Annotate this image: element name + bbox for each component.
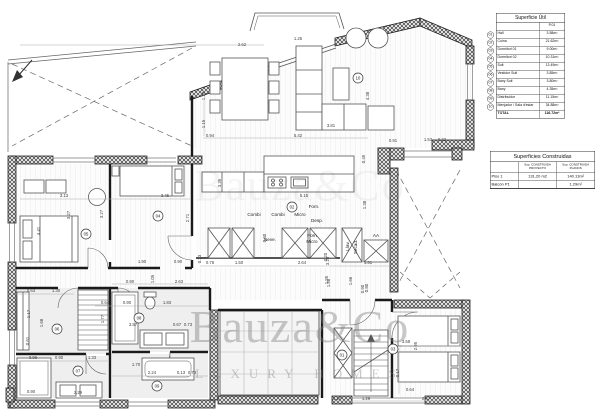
patio-floor	[220, 310, 320, 398]
dimension-text: 0.63	[27, 288, 36, 293]
dimension-text: 2.24	[148, 370, 157, 375]
armchair	[368, 106, 394, 130]
pillow	[451, 319, 458, 330]
room-label-cell: Bany	[497, 87, 540, 95]
room-label-cell: Dormitori 01	[497, 47, 540, 55]
fixture-label: Neve.	[264, 237, 276, 242]
dimension-text: 0.67	[173, 322, 182, 327]
dimension-text: 1.68	[39, 318, 44, 327]
wardrobe	[46, 180, 66, 193]
bath2-fixtures	[142, 358, 194, 380]
bathtub	[142, 358, 194, 380]
table-row: TOTAL116.72m²	[497, 111, 565, 119]
dimension-text: 1.90	[138, 259, 147, 264]
coffee-table	[333, 68, 349, 100]
dimension-text: 1.83	[163, 300, 172, 305]
sink	[144, 333, 162, 345]
fixture-label: Llav.	[345, 241, 350, 250]
room-label-cell: Distribuidor	[497, 95, 540, 103]
value-cell	[519, 181, 557, 189]
fixture-label: Combi	[247, 212, 260, 217]
balcony	[250, 13, 344, 31]
column	[368, 28, 388, 48]
dimension-text: 0.23	[197, 254, 202, 263]
fixture-label: Forn.	[309, 204, 320, 209]
dimension-text: 1.30	[52, 288, 61, 293]
room-label-cell	[497, 23, 540, 31]
room-number-badge: 09	[487, 96, 494, 103]
dimension-text: 1.05	[150, 274, 155, 283]
area-value-cell: 3.85m²	[540, 71, 565, 79]
dimension-text: 0.90	[123, 300, 132, 305]
dimension-text: 1.33	[88, 355, 97, 360]
dimension-text: 4.41	[36, 226, 41, 235]
fixture-label: Secad.	[353, 240, 358, 254]
room-number-badge: 10	[487, 104, 494, 111]
chair	[269, 81, 279, 94]
value-cell: 140.13m²	[557, 173, 595, 181]
dimension-text: 0.96	[29, 355, 38, 360]
dimension-text: 0.49	[361, 154, 366, 163]
room-number-text: 10	[356, 76, 361, 81]
dimension-text: 0.73	[188, 370, 197, 375]
value-cell: 1.29m²	[557, 181, 595, 189]
sink	[166, 333, 184, 345]
dimension-text: 1.29	[362, 396, 371, 401]
dimension-text: 0.94	[206, 133, 215, 138]
dimension-text: 1.53	[424, 137, 433, 142]
table-row: 01Hall3.58m²	[497, 31, 565, 39]
room-label-cell: Hall	[497, 31, 540, 39]
dimension-text: 0.90	[27, 389, 36, 394]
pillow	[175, 169, 182, 180]
dimension-text: 2.62	[238, 42, 247, 47]
area-value-cell: 3.58m²	[540, 31, 565, 39]
table-row: 06Vestidor Suit3.85m²	[497, 71, 565, 79]
dimension-text: 3.35	[217, 178, 222, 187]
column-header-cell: Sup. CONSTRUIDA PROYECTO	[519, 162, 557, 173]
room-label-cell: Bany Suit	[497, 79, 540, 87]
room-number-text: 09	[155, 384, 160, 389]
hob	[268, 177, 286, 188]
dimension-text: 0.64	[101, 300, 110, 305]
dimension-text: 0.76	[206, 260, 215, 265]
void-bottomright-x	[400, 272, 460, 298]
dimension-text: 3.27	[66, 210, 71, 219]
dimension-text: 5.15	[300, 193, 309, 198]
round-chair	[89, 189, 106, 206]
area-value-cell: 11.15m²	[540, 95, 565, 103]
table-row: 07Bany Suit3.80m²	[497, 79, 565, 87]
pillow	[23, 241, 32, 259]
dimension-text: 3.57	[129, 322, 138, 327]
dimension-text: 1.15	[201, 119, 206, 128]
table-row: 02Cuina21.62m²	[497, 39, 565, 47]
value-cell: Piso 1	[491, 173, 519, 181]
room-number-text: 02	[290, 205, 295, 210]
sink	[80, 385, 96, 396]
dimension-text: 5.42	[294, 133, 303, 138]
superficies-construidas-table: Superficies Construidas Sup. CONSTRUIDA …	[490, 151, 595, 189]
room-number-badge: 05	[487, 64, 494, 71]
toilet-tank	[144, 292, 156, 297]
dimension-text: 3.45	[161, 193, 170, 198]
bed	[120, 166, 184, 196]
dimension-text: 3.27	[99, 209, 104, 218]
dimension-text: 1.50	[235, 260, 244, 265]
dimension-text: 2.29	[74, 390, 83, 395]
dining-table-set	[210, 58, 279, 120]
dimension-text: 1.10	[333, 396, 342, 401]
room-number-text: 08	[137, 316, 142, 321]
dimension-text: 1.20	[201, 91, 206, 100]
room-number-badge: 02	[487, 40, 494, 47]
column-header-cell	[491, 162, 519, 173]
dimension-text: 0.61	[25, 336, 30, 345]
dimension-text: 0.90	[126, 279, 135, 284]
room-label-cell: Menjador / Sala d'estar	[497, 103, 540, 111]
table-row: P.01	[497, 23, 565, 31]
dimension-text: 1.25	[294, 36, 303, 41]
dimension-text: 1.70	[132, 362, 141, 367]
column	[346, 28, 366, 48]
area-value-cell: 4.35m²	[540, 87, 565, 95]
floorplan-sheet: 2.621.254.383.815.420.941.201.150.911.53…	[0, 0, 600, 412]
fixture-label: Desp.	[311, 218, 323, 223]
room-label-cell: Dormitori 02	[497, 55, 540, 63]
dimension-text: 0.17	[395, 368, 400, 377]
kitchen-counter	[202, 172, 264, 192]
area-value-cell: 34.88m²	[540, 103, 565, 111]
fixture-label: Micro	[306, 239, 318, 244]
pillow	[451, 332, 458, 343]
dimension-text: 2.47	[422, 396, 431, 401]
pillow	[175, 182, 182, 193]
fixture-label: Combi	[271, 212, 284, 217]
room-label-cell: Suit	[497, 63, 540, 71]
dimension-text: 2.63	[175, 279, 184, 284]
room-label-cell: TOTAL	[497, 111, 540, 119]
area-value-cell: 116.72m²	[540, 111, 565, 119]
dimension-text: 0.22	[438, 137, 447, 142]
toilet	[145, 297, 155, 309]
room-number-badge: 08	[487, 88, 494, 95]
table-row: Balcón P11.29m²	[491, 181, 595, 189]
dimension-text: 0.80	[364, 283, 369, 292]
pillow	[23, 220, 32, 238]
room-number-text: 01	[340, 353, 345, 358]
room-number-badge: 07	[487, 80, 494, 87]
table-row: 09Distribuidor11.15m²	[497, 95, 565, 103]
dimension-text: 2.64	[298, 260, 307, 265]
table-title: Superficies Construidas	[490, 151, 595, 162]
area-value-cell: 21.62m²	[540, 39, 565, 47]
room-number-text: 07	[76, 369, 81, 374]
room-number-text: 06	[55, 327, 60, 332]
column-header-cell: Sup. CONSTRUIDA PLANOS	[557, 162, 595, 173]
dimension-text: 1.38	[362, 200, 367, 209]
wardrobe	[24, 180, 44, 193]
table-row: 08Bany4.35m²	[497, 87, 565, 95]
room-label-cell: Vestidor Suit	[497, 71, 540, 79]
dimension-text: 1.17	[26, 309, 31, 318]
table-title: Superficie Útil	[496, 13, 565, 23]
pillow	[451, 355, 458, 366]
room-label-cell: Cuina	[497, 39, 540, 47]
dimension-text: 3.13	[60, 193, 69, 198]
room-number-badge: 01	[487, 32, 494, 39]
room-number-badge: 06	[487, 72, 494, 79]
void-right-x	[396, 170, 460, 288]
room-number-text: 03	[391, 347, 396, 352]
dimension-text: 0.13	[177, 370, 186, 375]
chair	[269, 62, 279, 75]
dimension-text: 1.77	[100, 314, 105, 323]
superficie-util-table: Superficie Útil P.0101Hall3.58m²02Cuina2…	[486, 13, 565, 119]
dimension-text: 4.38	[365, 91, 370, 100]
dimension-text: 1.66	[348, 276, 353, 285]
chair	[269, 100, 279, 113]
bedroom02-furniture	[112, 166, 184, 196]
room-number-badge: 04	[487, 56, 494, 63]
area-value-cell: 10.31m²	[540, 55, 565, 63]
area-value-cell: 13.49m²	[540, 63, 565, 71]
void-topleft-x	[12, 48, 192, 146]
pillow	[451, 368, 458, 379]
area-value-cell: 9.00m²	[540, 47, 565, 55]
value-cell: 131,20 m2	[519, 173, 557, 181]
fixture-label: Micro	[294, 212, 306, 217]
table-row: 05Suit13.49m²	[497, 63, 565, 71]
dimension-text: 1.95	[324, 275, 329, 284]
room-number-badge: 03	[487, 48, 494, 55]
table-row: 10Menjador / Sala d'estar34.88m²	[497, 103, 565, 111]
room-number-text: 05	[84, 232, 89, 237]
room-number-text: 04	[156, 214, 161, 219]
dimension-text: 1.51	[364, 260, 373, 265]
chair	[210, 81, 220, 94]
fixture-label: AA	[373, 233, 380, 238]
fixture-label: Forn	[307, 233, 317, 238]
chair	[210, 62, 220, 75]
dimension-text: 2.71	[185, 213, 190, 222]
dimension-text: 3.58	[402, 339, 411, 344]
dimension-text: 0.91	[389, 138, 398, 143]
dimension-text: 0.73	[184, 322, 193, 327]
dimension-text: 0.90	[174, 259, 183, 264]
dimension-text: 3.81	[327, 123, 336, 128]
area-value-cell: P.01	[540, 23, 565, 31]
value-cell: Balcón P1	[491, 181, 519, 189]
dimension-text: 0.64	[406, 387, 415, 392]
dimension-text: 0.90	[55, 355, 64, 360]
dimension-text: 2.95	[413, 341, 418, 350]
nightstand	[112, 166, 119, 176]
table-row: 04Dormitori 0210.31m²	[497, 55, 565, 63]
dimension-text: 0.20	[323, 252, 328, 261]
table-row: Sup. CONSTRUIDA PROYECTOSup. CONSTRUIDA …	[491, 162, 595, 173]
table-row: Piso 1131,20 m2140.13m²	[491, 173, 595, 181]
table-row: 03Dormitori 019.00m²	[497, 47, 565, 55]
chair	[210, 100, 220, 113]
area-value-cell: 3.80m²	[540, 79, 565, 87]
